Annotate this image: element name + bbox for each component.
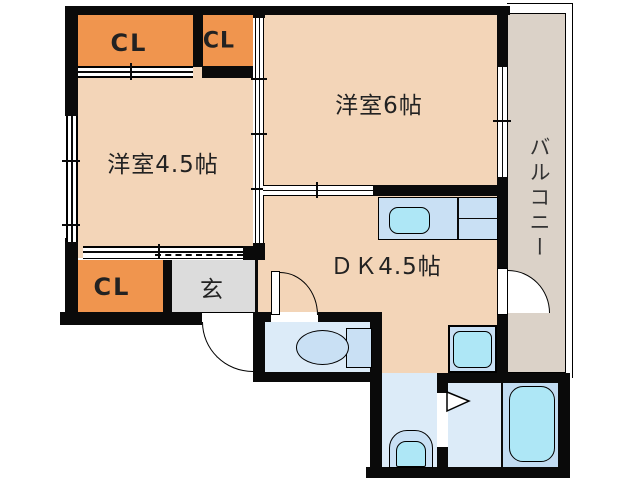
wall-kitchen-top	[373, 185, 497, 196]
door-dk-balcony-opening	[497, 268, 508, 315]
door-entrance-swing	[202, 322, 253, 372]
sliding-band-room45-tick	[158, 244, 160, 258]
closet-2-label: CL	[203, 29, 235, 54]
wall-bottom-entrance	[60, 312, 205, 325]
closet-3-label: CL	[94, 273, 131, 301]
washbasin-bowl	[396, 441, 426, 467]
bathroom-divider-line	[501, 383, 503, 467]
dk-floor-strip	[258, 260, 265, 312]
door-bathroom-triangle-icon	[446, 390, 472, 414]
entrance-label: 玄	[200, 270, 224, 304]
kitchen-counter-shelf-line	[458, 218, 498, 219]
wall-band-right-block	[243, 246, 255, 260]
window-left-tick-2	[62, 224, 80, 226]
wall-right-mid	[497, 177, 508, 268]
wall-toilet-top-a	[253, 312, 271, 322]
window-room6-balcony-tick	[493, 120, 511, 122]
wall-left-lower	[65, 238, 78, 318]
wall-top	[65, 6, 510, 15]
sliding-band-room45-bottom	[83, 246, 243, 259]
toilet-tank	[346, 328, 372, 368]
partition-room6-dk-tick	[316, 182, 318, 198]
partition-center-tick-1	[251, 78, 267, 80]
room-6-label: 洋室6帖	[335, 86, 423, 120]
wall-bath-left-b	[437, 447, 448, 467]
wall-center-top-block	[253, 6, 265, 18]
threshold-dashed-line	[155, 254, 243, 256]
sliding-door-closet-1-tick	[130, 63, 132, 80]
washing-machine	[453, 331, 492, 368]
wall-bath-right	[558, 373, 570, 478]
floor-plan: 洋室4.5帖 洋室6帖 ＤＫ4.5帖 CL CL CL 玄 バルコニー	[0, 0, 640, 480]
closet-1-label: CL	[111, 29, 148, 57]
window-left-tick-1	[62, 160, 80, 162]
wall-left-upper	[65, 6, 78, 116]
wall-closet-divider	[193, 15, 203, 67]
wall-bottom-wet	[366, 467, 570, 478]
partition-center-tick-2	[251, 133, 267, 135]
sliding-band-room45-line	[83, 251, 243, 253]
partition-center-line	[259, 18, 260, 243]
wall-closet3-right	[163, 260, 172, 312]
kitchen-sink	[389, 207, 430, 234]
window-room6-balcony-line	[502, 67, 503, 177]
dk-label: ＤＫ4.5帖	[330, 247, 442, 281]
wall-entrance-right-line	[255, 260, 258, 312]
wall-dk-bottom	[437, 373, 570, 383]
partition-room6-dk-line	[263, 190, 373, 191]
wall-right-upper	[497, 6, 508, 67]
wall-closet2-bottom	[202, 66, 253, 78]
toilet-bowl	[296, 330, 349, 365]
wall-toilet-bottom	[253, 372, 370, 382]
room-45-label: 洋室4.5帖	[107, 145, 219, 179]
balcony-label: バルコニー	[524, 136, 554, 261]
door-toilet-leaf	[271, 271, 280, 315]
bathtub	[509, 386, 555, 462]
sliding-door-closet-1-line	[78, 71, 193, 73]
